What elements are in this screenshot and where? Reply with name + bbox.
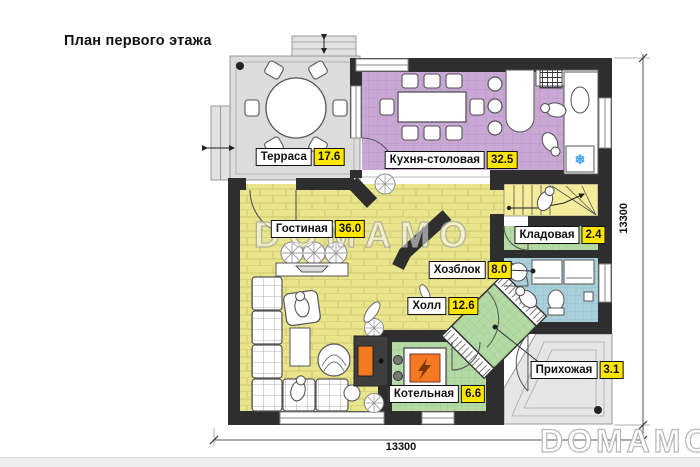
dimension-bottom: 13300 bbox=[374, 441, 428, 453]
sink bbox=[509, 263, 527, 281]
toilet bbox=[548, 290, 564, 310]
room-label-pantry: Кладовая2.4 bbox=[514, 226, 605, 244]
dining-table bbox=[398, 92, 466, 122]
room-label-kitchen-dining: Кухня-столовая32.5 bbox=[385, 151, 518, 169]
room-area: 3.1 bbox=[599, 361, 623, 379]
terrace-table bbox=[266, 78, 326, 138]
porch-column bbox=[594, 406, 602, 414]
washing-machine bbox=[564, 260, 594, 284]
room-area: 2.4 bbox=[582, 226, 606, 244]
room-label-utility: Хозблок8.0 bbox=[429, 261, 512, 279]
page-title: План первого этажа bbox=[64, 33, 212, 49]
side-table bbox=[290, 328, 310, 366]
kitchen-sink bbox=[571, 87, 589, 113]
room-name: Кладовая bbox=[514, 226, 579, 244]
room-area: 17.6 bbox=[314, 148, 344, 166]
room-label-hall: Холл12.6 bbox=[407, 297, 478, 315]
swivel-chair bbox=[318, 344, 350, 376]
room-name: Прихожая bbox=[531, 361, 598, 379]
room-area: 32.5 bbox=[487, 151, 517, 169]
dimension-right: 13300 bbox=[618, 203, 630, 234]
kitchen-peninsula bbox=[506, 70, 534, 132]
snowflake-icon: ❄ bbox=[575, 152, 586, 168]
room-label-living: Гостиная36.0 bbox=[271, 220, 365, 238]
room-area: 8.0 bbox=[487, 261, 511, 279]
room-label-entry: Прихожая3.1 bbox=[531, 361, 624, 379]
room-name: Хозблок bbox=[429, 261, 486, 279]
room-label-boiler: Котельная6.6 bbox=[389, 385, 485, 403]
tv bbox=[296, 266, 328, 272]
room-area: 36.0 bbox=[335, 220, 365, 238]
watermark-corner: DOMAMO bbox=[540, 423, 700, 460]
washing-machine bbox=[532, 260, 562, 284]
floor-plan-page: План первого этажа bbox=[0, 0, 700, 467]
room-name: Холл bbox=[407, 297, 446, 315]
room-name: Терраса bbox=[256, 148, 312, 166]
room-name: Гостиная bbox=[271, 220, 333, 238]
terrace-column bbox=[236, 62, 244, 70]
room-area: 12.6 bbox=[448, 297, 478, 315]
room-label-terrace: Терраса17.6 bbox=[256, 148, 345, 166]
room-name: Кухня-столовая bbox=[385, 151, 485, 169]
room-name: Котельная bbox=[389, 385, 459, 403]
fireplace bbox=[354, 336, 388, 386]
stove bbox=[540, 70, 562, 88]
room-area: 6.6 bbox=[461, 385, 485, 403]
